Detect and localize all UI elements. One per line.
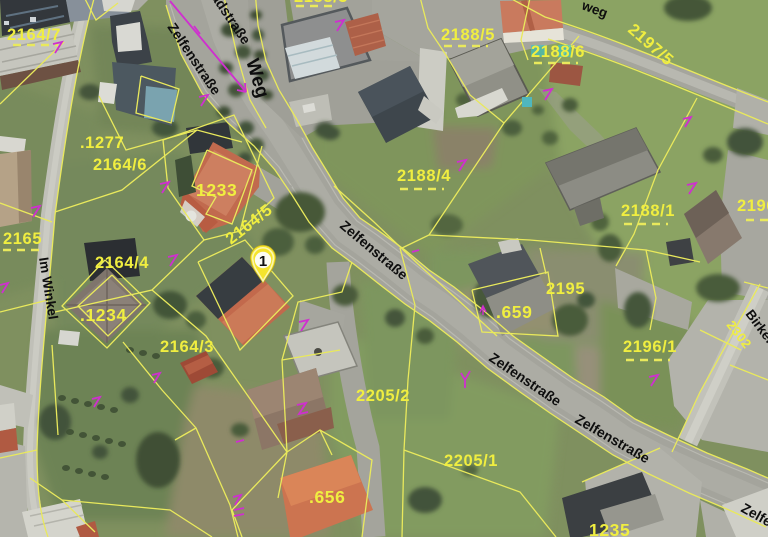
svg-text:.1234: .1234 <box>80 305 127 325</box>
svg-text:.656: .656 <box>309 487 345 507</box>
svg-text:2164/4: 2164/4 <box>95 254 149 272</box>
svg-text:2165: 2165 <box>3 230 42 248</box>
svg-text:2188/1: 2188/1 <box>621 202 675 220</box>
svg-text:2188/4: 2188/4 <box>397 167 451 185</box>
svg-text:.659: .659 <box>496 302 532 322</box>
svg-text:2164/3: 2164/3 <box>160 338 214 356</box>
svg-text:2164/7: 2164/7 <box>7 26 61 44</box>
svg-text:2188/3: 2188/3 <box>294 0 348 6</box>
svg-text:2196: 2196 <box>737 197 768 215</box>
svg-text:2195: 2195 <box>546 280 585 298</box>
svg-text:2188/5: 2188/5 <box>441 26 495 44</box>
svg-text:1: 1 <box>259 253 267 270</box>
svg-text:.1277: .1277 <box>80 134 124 152</box>
svg-text:1235: 1235 <box>589 520 630 537</box>
svg-text:2205/1: 2205/1 <box>444 452 498 470</box>
svg-text:2188/6: 2188/6 <box>531 43 585 61</box>
svg-text:2196/1: 2196/1 <box>623 338 677 356</box>
svg-text:2205/2: 2205/2 <box>356 387 410 405</box>
svg-text:2164/6: 2164/6 <box>93 156 147 174</box>
svg-text:1233: 1233 <box>196 180 237 200</box>
